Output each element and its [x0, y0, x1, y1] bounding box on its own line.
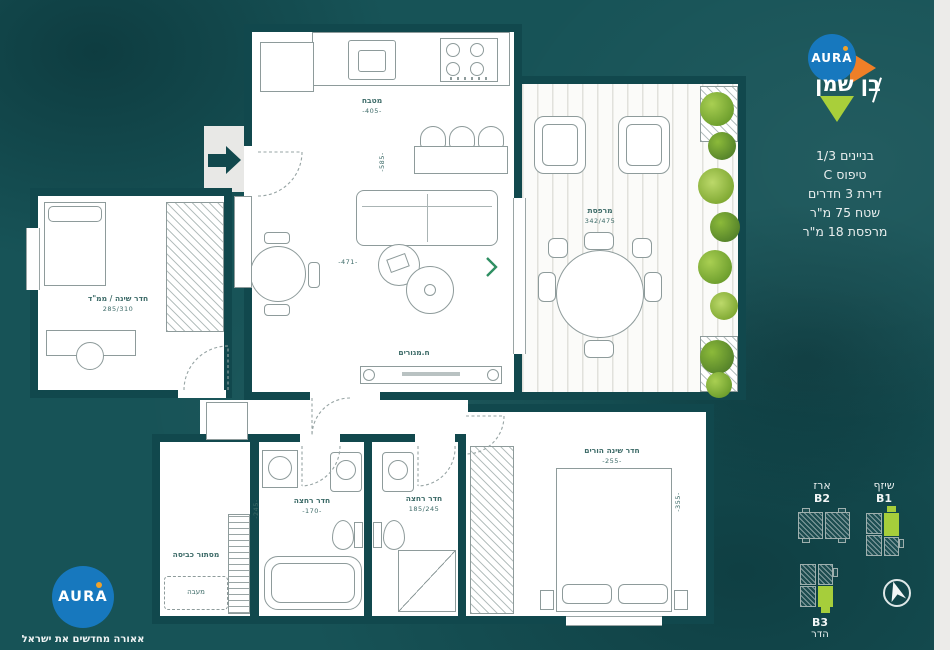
burner-icon [446, 43, 460, 57]
sofa-divider [427, 194, 428, 242]
plant [706, 372, 732, 398]
plant [710, 212, 740, 242]
dim-bath1: -170- [302, 507, 322, 515]
footer-tagline: אאורה מחדשים את ישראל [14, 634, 152, 645]
mamad-window [26, 228, 40, 290]
north-compass-icon [878, 574, 916, 612]
burner-icon [446, 62, 460, 76]
keyplan-b2-name: ארז [796, 479, 848, 492]
dim-bath1-v: -245- [252, 499, 260, 519]
dim-master-v: -355- [674, 492, 682, 512]
wall-laundry-bath1 [250, 442, 259, 616]
footer-logo-circle: AURA [52, 566, 114, 628]
dining-chair [308, 262, 320, 288]
entry-arrow-head [226, 146, 241, 174]
green-triangle-icon [820, 96, 854, 122]
label-laundry: מסתור כביסה [173, 550, 220, 559]
dim-balcony: 342/475 [585, 217, 616, 225]
balcony-chair [538, 272, 556, 302]
wall-corridor-c [455, 434, 466, 442]
keyplan-building-b2 [798, 508, 850, 544]
pillow [48, 206, 102, 222]
stove-knobs [450, 77, 490, 80]
highlighted-unit [818, 586, 833, 607]
keyplan-b3-id: B3 [794, 616, 846, 629]
keyplan-building-b1 [866, 506, 904, 560]
bar-stool [449, 126, 475, 148]
label-balcony: מרפסת [587, 206, 612, 215]
pillow [562, 584, 612, 604]
shelf-unit [234, 196, 252, 288]
keyplan-b3-name: הדר [794, 629, 846, 640]
label-mamad: חדר שינה / ממ"ד [88, 294, 148, 303]
label-living: ח.מגורים [398, 348, 429, 357]
aura-logo-text: AURA [811, 51, 852, 65]
corridor-cabinet [206, 402, 248, 440]
coffee-table-detail [424, 284, 436, 296]
bathtub-inner [271, 563, 355, 603]
plant [698, 168, 734, 204]
balcony-dining-table [556, 250, 644, 338]
burner-icon [470, 43, 484, 57]
toilet-tank [354, 522, 363, 548]
label-kitchen: מטבח [362, 96, 382, 105]
footer-logo-dot-icon [96, 582, 102, 588]
plant [700, 340, 734, 374]
nightstand [674, 590, 688, 610]
burner-icon [470, 62, 484, 76]
fridge [260, 42, 314, 92]
info-type: טיפוס C [760, 165, 930, 184]
entry-door-gap [244, 146, 252, 196]
master-wardrobe [470, 446, 514, 614]
dining-table [250, 246, 306, 302]
balcony-chair [584, 232, 614, 250]
dim-master: -255- [602, 457, 622, 465]
dining-chair [264, 304, 290, 316]
wall-bath1-bath2 [364, 442, 372, 616]
washing-machine-drum [268, 456, 292, 480]
plant [710, 292, 738, 320]
label-master: חדר שינה הורים [584, 446, 639, 455]
bar-counter [414, 146, 508, 174]
info-rooms: דירת 3 חדרים [760, 184, 930, 203]
toilet-bowl [383, 520, 405, 550]
label-bath1: חדר רחצה [294, 496, 330, 505]
project-logo: AURA בן שמן [790, 25, 930, 135]
living-corridor-gap [310, 392, 380, 400]
speaker [487, 369, 499, 381]
dim-bath2: 185/245 [409, 505, 440, 513]
plant [708, 132, 736, 160]
master-window [566, 616, 662, 626]
keyplan-b2-id: B2 [796, 492, 848, 505]
balcony-armchair-cushion [626, 124, 662, 166]
footer-logo-text: AURA [58, 589, 108, 605]
nightstand [540, 590, 554, 610]
info-balcony: מרפסת 18 מ"ר [760, 222, 930, 241]
dim-kitchen: -405- [362, 107, 382, 115]
floorplan-poster: מעבה מטבח -405- ח.מגורים -471- -585- מרפ… [0, 0, 950, 650]
kitchen-sink-basin [358, 50, 386, 72]
balcony-chair [584, 340, 614, 358]
balcony-glass-door [513, 198, 526, 354]
right-edge-strip [934, 0, 950, 650]
balcony-armchair-cushion [542, 124, 578, 166]
plant [700, 92, 734, 126]
condenser-box: מעבה [164, 576, 228, 610]
pillow [618, 584, 668, 604]
laundry-louver-screen [228, 514, 250, 614]
highlighted-unit [884, 513, 899, 536]
toilet-bowl [332, 520, 354, 550]
label-bath2: חדר רחצה [406, 494, 442, 503]
toilet-tank [373, 522, 382, 548]
wardrobe [166, 202, 224, 332]
keyplan-b1-id: B1 [858, 492, 910, 505]
keyplan-building-b3 [800, 560, 838, 614]
info-area: שטח 75 מ"ר [760, 203, 930, 222]
info-buildings: בניינים 1/3 [760, 146, 930, 165]
speaker [363, 369, 375, 381]
mamad-door-gap [178, 390, 226, 398]
bathroom1-basin [336, 460, 356, 480]
bar-stool [420, 126, 446, 148]
balcony-chair [644, 272, 662, 302]
dim-living-w: -471- [338, 258, 358, 266]
shower [398, 550, 456, 612]
dim-living-h: -585- [378, 152, 386, 172]
wall-corridor-b [340, 434, 415, 442]
entry-arrow [208, 154, 226, 167]
desk-chair [76, 342, 104, 370]
bathroom2-basin [388, 460, 408, 480]
aura-logo-dot-icon [843, 46, 848, 51]
bar-stool [478, 126, 504, 148]
dining-chair [264, 232, 290, 244]
plant [698, 250, 732, 284]
balcony-chair [632, 238, 652, 258]
dim-mamad: 285/310 [103, 305, 134, 313]
tv-screen [402, 372, 460, 376]
keyplan-b1-name: שיזף [858, 479, 910, 492]
balcony-chair [548, 238, 568, 258]
apartment-info: בניינים 1/3 טיפוס C דירת 3 חדרים שטח 75 … [760, 146, 930, 241]
